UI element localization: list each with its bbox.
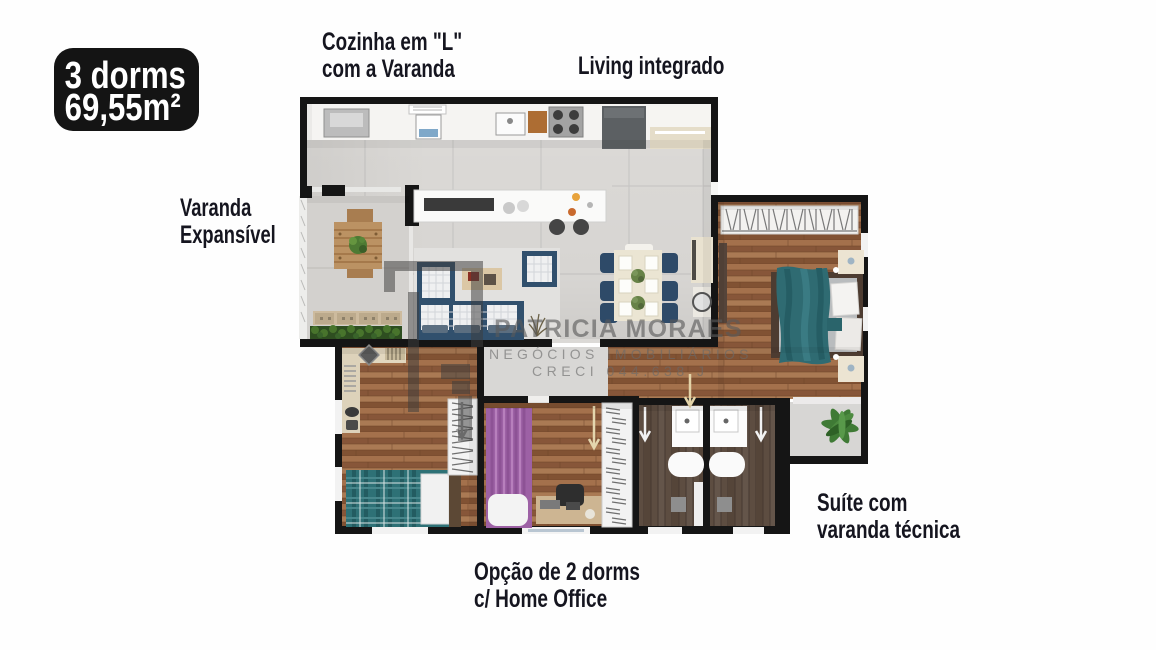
svg-text:NEGÓCIOS IMOBILIÁRIOS: NEGÓCIOS IMOBILIÁRIOS <box>489 346 753 362</box>
svg-text:CRECI 044.638 J: CRECI 044.638 J <box>532 363 708 379</box>
svg-text:PATRICIA MORAES: PATRICIA MORAES <box>494 315 744 343</box>
